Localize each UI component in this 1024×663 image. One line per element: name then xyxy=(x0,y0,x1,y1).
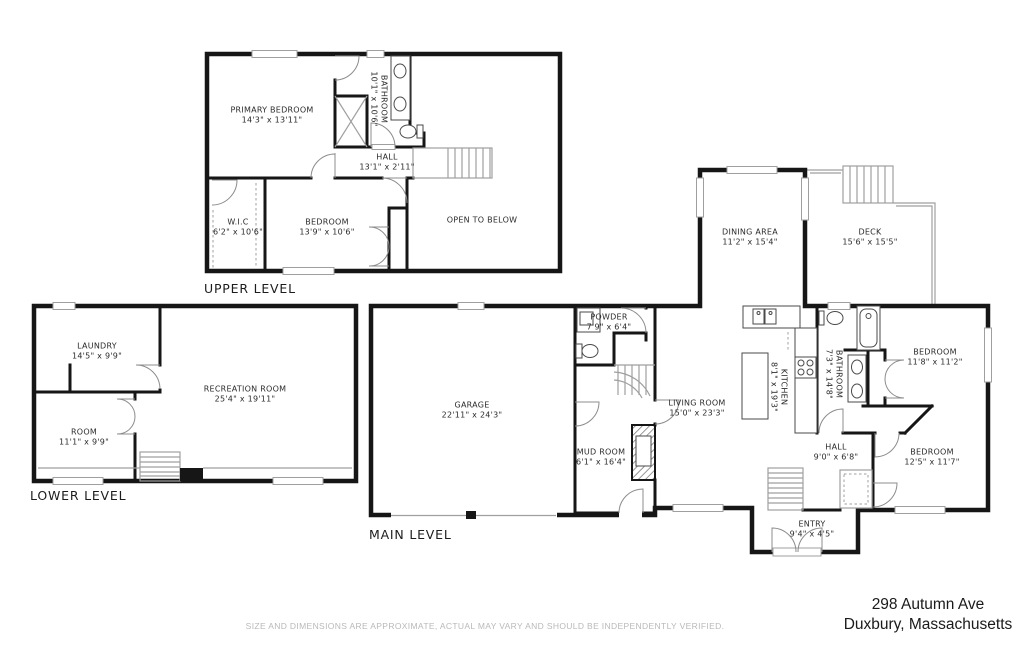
room-dims: 9'4" x 4'5" xyxy=(790,529,835,539)
room-dims: 14'3" x 13'11" xyxy=(230,115,313,125)
room-name: HALL xyxy=(814,443,859,453)
stair-wall-block xyxy=(180,468,203,481)
property-address: 298 Autumn Ave Duxbury, Massachusetts xyxy=(828,595,1024,635)
room-dims: 7'3" x 14'8" xyxy=(825,349,835,399)
garage-doors xyxy=(391,511,557,520)
room-dims: 12'5" x 11'7" xyxy=(904,457,959,467)
room-label-living-room: LIVING ROOM 15'0" x 23'3" xyxy=(668,399,725,418)
room-label-upper-bathroom: BATHROOM 10'1" x 10'6" xyxy=(370,71,389,126)
room-name: W.I.C xyxy=(213,218,263,228)
room-name: HALL xyxy=(359,153,414,163)
room-dims: 11'8" x 11'2" xyxy=(907,357,962,367)
bathtub-icon xyxy=(857,306,880,350)
room-name: ENTRY xyxy=(790,520,835,530)
room-dims: 6'1" x 16'4" xyxy=(576,457,626,467)
deck-stairs-icon xyxy=(843,166,893,203)
room-dims: 14'5" x 9'9" xyxy=(72,351,122,361)
room-label-bedroom-2: BEDROOM 12'5" x 11'7" xyxy=(904,448,959,467)
room-label-entry: ENTRY 9'4" x 4'5" xyxy=(790,520,835,539)
powder-toilet-icon xyxy=(576,344,598,358)
main-level-title: MAIN LEVEL xyxy=(369,527,452,542)
lower-door-arcs xyxy=(117,365,160,434)
room-label-primary-bedroom: PRIMARY BEDROOM 14'3" x 13'11" xyxy=(230,106,313,125)
upper-level-title: UPPER LEVEL xyxy=(204,281,296,296)
room-label-garage: GARAGE 22'11" x 24'3" xyxy=(442,401,503,420)
room-name: DECK xyxy=(842,228,897,238)
upper-stairs-icon xyxy=(413,148,492,178)
fireplace-chimney-icon xyxy=(632,425,655,480)
room-label-open-to-below: OPEN TO BELOW xyxy=(447,215,518,225)
lower-level-title: LOWER LEVEL xyxy=(30,488,126,503)
room-label-bedroom-1: BEDROOM 11'8" x 11'2" xyxy=(907,348,962,367)
room-name: MUD ROOM xyxy=(576,448,626,458)
main-toilet-icon xyxy=(819,311,843,325)
room-name: BEDROOM xyxy=(299,218,354,228)
room-dims: 15'6" x 15'5" xyxy=(842,237,897,247)
room-label-laundry: LAUNDRY 14'5" x 9'9" xyxy=(72,342,122,361)
room-dims: 11'2" x 15'4" xyxy=(722,237,778,247)
room-name: BATHROOM xyxy=(379,71,389,126)
room-name: KITCHEN xyxy=(779,362,789,412)
room-label-room: ROOM 11'1" x 9'9" xyxy=(59,428,109,447)
room-name: ROOM xyxy=(59,428,109,438)
entry-closet xyxy=(840,470,872,508)
room-name: BATHROOM xyxy=(834,349,844,399)
room-label-mud-room: MUD ROOM 6'1" x 16'4" xyxy=(576,448,626,467)
kitchen-island xyxy=(742,353,768,419)
room-label-powder: POWDER 7'9" x 6'4" xyxy=(587,313,632,332)
stove-icon xyxy=(795,357,816,378)
room-name: LIVING ROOM xyxy=(668,399,725,409)
entry-door-opening xyxy=(773,548,821,556)
address-line-1: 298 Autumn Ave xyxy=(828,595,1024,615)
address-line-2: Duxbury, Massachusetts xyxy=(828,615,1024,635)
room-name: OPEN TO BELOW xyxy=(447,215,518,225)
room-name: BEDROOM xyxy=(907,348,962,358)
room-label-wic: W.I.C 6'2" x 10'6" xyxy=(213,218,263,237)
room-dims: 13'1" x 2'11" xyxy=(359,162,414,172)
room-label-main-hall: HALL 9'0" x 6'8" xyxy=(814,443,859,462)
mud-door-opening xyxy=(619,511,642,520)
disclaimer-text: SIZE AND DIMENSIONS ARE APPROXIMATE, ACT… xyxy=(180,621,790,631)
room-label-upper-hall: HALL 13'1" x 2'11" xyxy=(359,153,414,172)
bathroom-vanity-sinks-icon xyxy=(391,56,410,120)
lower-level-plan xyxy=(34,303,356,485)
main-vanity-sinks-icon xyxy=(848,355,866,402)
room-name: POWDER xyxy=(587,313,632,323)
shower-icon xyxy=(335,96,367,147)
entry-stairs-icon xyxy=(768,468,803,510)
room-dims: 7'9" x 6'4" xyxy=(587,322,632,332)
room-label-deck: DECK 15'6" x 15'5" xyxy=(842,228,897,247)
room-label-kitchen: KITCHEN 8'1" x 19'3" xyxy=(770,362,789,412)
room-dims: 6'2" x 10'6" xyxy=(213,227,263,237)
room-dims: 13'9" x 10'6" xyxy=(299,227,354,237)
main-upper-stairs-icon xyxy=(614,365,655,398)
floorplan-document: PRIMARY BEDROOM 14'3" x 13'11" BATHROOM … xyxy=(0,0,1024,663)
bathroom-pocket-door xyxy=(372,145,395,150)
room-name: DINING AREA xyxy=(722,228,778,238)
room-label-main-bathroom: BATHROOM 7'3" x 14'8" xyxy=(825,349,844,399)
room-dims: 10'1" x 10'6" xyxy=(370,71,380,126)
room-name: LAUNDRY xyxy=(72,342,122,352)
room-dims: 8'1" x 19'3" xyxy=(770,362,780,412)
room-name: BEDROOM xyxy=(904,448,959,458)
room-label-recreation-room: RECREATION ROOM 25'4" x 19'11" xyxy=(204,385,287,404)
room-dims: 25'4" x 19'11" xyxy=(204,394,287,404)
room-dims: 9'0" x 6'8" xyxy=(814,452,859,462)
room-dims: 11'1" x 9'9" xyxy=(59,437,109,447)
floorplan-drawing xyxy=(0,0,1024,663)
lower-interior-walls xyxy=(34,306,160,481)
room-label-dining-area: DINING AREA 11'2" x 15'4" xyxy=(722,228,778,247)
room-name: GARAGE xyxy=(442,401,503,411)
room-label-upper-bedroom: BEDROOM 13'9" x 10'6" xyxy=(299,218,354,237)
room-dims: 15'0" x 23'3" xyxy=(668,408,725,418)
room-dims: 22'11" x 24'3" xyxy=(442,410,503,420)
toilet-icon xyxy=(400,125,423,138)
room-name: RECREATION ROOM xyxy=(204,385,287,395)
room-name: PRIMARY BEDROOM xyxy=(230,106,313,116)
lower-stairs-icon xyxy=(140,452,180,481)
